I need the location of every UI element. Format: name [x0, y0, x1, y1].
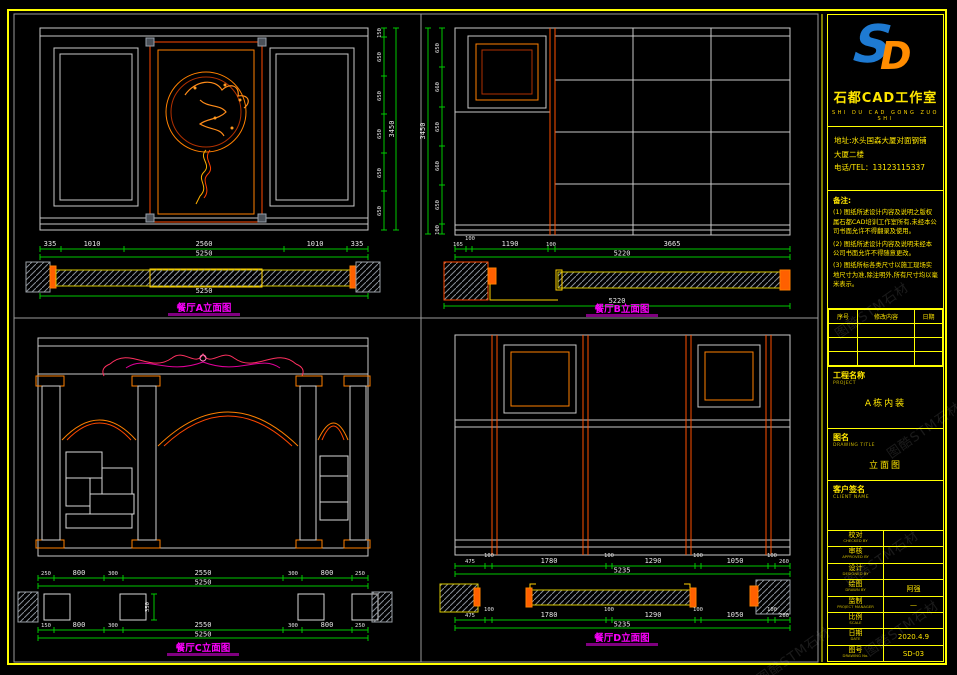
- dim-total: 5235: [614, 567, 631, 575]
- drawing-canvas: 335 1010 2560 1010 335 5250 5250 150 650…: [0, 0, 957, 675]
- note-1: (1) 图纸所述设计内容及说明之版权属石都CAD培训工作室所有,未经本公司书面允…: [833, 208, 938, 236]
- dim-text: 660: [435, 82, 441, 92]
- dim-total: 5250: [196, 250, 213, 258]
- dim-text: 150: [41, 623, 51, 629]
- rev-cell: [915, 324, 943, 338]
- dim-text: 800: [73, 569, 86, 577]
- dim-plan-total: 5250: [196, 287, 213, 295]
- rev-cell: [829, 338, 858, 352]
- notes-title: 备注:: [833, 195, 938, 206]
- row-approved-by: 审核APPROVED BY: [828, 547, 943, 563]
- dim-text: 3665: [664, 240, 681, 248]
- client-label: 客户签名: [833, 484, 938, 495]
- dim-text: 150: [377, 28, 383, 38]
- row-value: 2020.4.9: [884, 629, 943, 644]
- dim-text: 2560: [196, 240, 213, 248]
- dim-text: 475: [465, 613, 475, 619]
- row-value: [884, 547, 943, 562]
- drawing-title-label-en: DRAWING TITLE: [833, 443, 938, 448]
- drawing-label-a: 餐厅A立面图: [176, 302, 232, 314]
- scroll-ornament: [103, 354, 303, 376]
- rev-cell: [858, 324, 915, 338]
- row-value: [884, 613, 943, 628]
- elevation-d: [455, 335, 790, 555]
- drawing-label-c: 餐厅C立面图: [175, 642, 230, 654]
- dim-total: 5250: [195, 579, 212, 587]
- row-value: [884, 531, 943, 546]
- dim-text: 260: [779, 613, 789, 619]
- dim-text: 250: [41, 571, 51, 577]
- dim-text: 650: [435, 122, 441, 132]
- dim-text: 1780: [541, 611, 558, 619]
- elevation-b: [455, 28, 790, 235]
- rev-cell: [858, 338, 915, 352]
- address-line-1: 地址:水头国森大厦对面钢铺: [834, 134, 937, 148]
- dim-text: 1290: [645, 557, 662, 565]
- rev-cell: [858, 352, 915, 366]
- address-line-2: 大厦二楼: [834, 148, 937, 162]
- row-checked-by: 校对CHECKED BY: [828, 531, 943, 547]
- label-underline: [167, 653, 239, 656]
- dim-text: 300: [288, 571, 298, 577]
- dim-text: 2550: [195, 569, 212, 577]
- row-label-en: CHECKED BY: [828, 539, 883, 544]
- dim-text: 300: [108, 623, 118, 629]
- row-label-en: DRAWING No.: [828, 654, 883, 659]
- medallion-ornament: [166, 72, 248, 204]
- dim-text: 660: [435, 161, 441, 171]
- row-date: 日期DATE 2020.4.9: [828, 629, 943, 645]
- elevation-a: [40, 28, 368, 230]
- dim-text: 335: [44, 240, 57, 248]
- phone-line: 电话/TEL：13123115337: [834, 161, 937, 175]
- rev-col-no: 序号: [829, 310, 858, 324]
- dim-text: 100: [604, 607, 614, 613]
- row-drawing-no: 图号DRAWING No. SD-03: [828, 646, 943, 662]
- dim-text: 650: [377, 129, 383, 139]
- rev-col-date: 日期: [915, 310, 943, 324]
- rev-cell: [829, 352, 858, 366]
- dim-text: 100: [484, 553, 494, 559]
- row-value: SD-03: [884, 646, 943, 662]
- drawing-title-section: 图名 DRAWING TITLE 立面图: [828, 429, 943, 481]
- dim-text: 165: [453, 242, 463, 248]
- plan-strip-b: [444, 262, 790, 300]
- row-value: 阿强: [884, 580, 943, 595]
- dim-text: 800: [321, 621, 334, 629]
- row-label-en: SCALE: [828, 621, 883, 626]
- rev-cell: [915, 352, 943, 366]
- drawing-title-label: 图名: [833, 432, 938, 443]
- row-designed-by: 设计DESIGNED BY: [828, 564, 943, 580]
- project-value: A栋内装: [833, 396, 938, 409]
- dim-text: 650: [377, 91, 383, 101]
- dim-text: 335: [351, 240, 364, 248]
- studio-logo-icon: S D: [828, 19, 943, 81]
- row-label-en: PROJECT MANAGER: [828, 605, 883, 610]
- drawing-label-d: 餐厅D立面图: [593, 632, 649, 644]
- row-label-en: DESIGNED BY: [828, 572, 883, 577]
- dim-total: 3450: [419, 123, 427, 140]
- rev-cell: [915, 338, 943, 352]
- dim-total: 5220: [614, 250, 631, 258]
- pilasters: [42, 386, 366, 540]
- client-label-en: CLIENT NAME: [833, 495, 938, 500]
- dim-text: 300: [288, 623, 298, 629]
- dim-text: 250: [355, 571, 365, 577]
- client-section: 客户签名 CLIENT NAME: [828, 481, 943, 531]
- dim-text: 650: [377, 206, 383, 216]
- dim-text: 1010: [307, 240, 324, 248]
- dim-text: 650: [377, 52, 383, 62]
- dim-text: 100: [767, 607, 777, 613]
- label-underline: [586, 643, 658, 646]
- dim-text: 800: [73, 621, 86, 629]
- dim-text: 475: [465, 559, 475, 565]
- studio-name: 石都CAD工作室: [828, 87, 943, 106]
- dim-total: 5235: [614, 621, 631, 629]
- rev-col-desc: 修改内容: [858, 310, 915, 324]
- row-label-en: DRAWN BY: [828, 588, 883, 593]
- dim-text: 260: [779, 559, 789, 565]
- dim-text: 650: [435, 200, 441, 210]
- row-drawn-by: 绘图DRAWN BY 阿强: [828, 580, 943, 596]
- dim-text: 100: [546, 242, 556, 248]
- dim-text: 1050: [727, 611, 744, 619]
- drawing-label-b: 餐厅B立面图: [594, 303, 650, 315]
- project-label-en: PROJECT: [833, 381, 938, 386]
- dim-text: 350: [145, 602, 151, 612]
- dims-a: 335 1010 2560 1010 335 5250 5250 150 650…: [40, 28, 399, 299]
- dim-text: 100: [484, 607, 494, 613]
- dim-text: 100: [767, 553, 777, 559]
- drawing-title-value: 立面图: [833, 458, 938, 471]
- dim-total: 5250: [195, 631, 212, 639]
- dims-c: 250 800 300 2550 300 800 250 5250 150 80…: [38, 569, 368, 641]
- row-label-en: APPROVED BY: [828, 555, 883, 560]
- dim-text: 100: [693, 607, 703, 613]
- label-underline: [168, 313, 240, 316]
- studio-name-pinyin: SHI DU CAD GONG ZUO SHI: [828, 110, 943, 122]
- dim-text: 100: [693, 553, 703, 559]
- dim-text: 100: [604, 553, 614, 559]
- dim-text: 800: [321, 569, 334, 577]
- title-block: S D 石都CAD工作室 SHI DU CAD GONG ZUO SHI 地址:…: [827, 14, 944, 662]
- dim-text: 100: [435, 225, 441, 235]
- dim-text: 1780: [541, 557, 558, 565]
- dim-text: 1290: [645, 611, 662, 619]
- plan-strip-c: [18, 592, 392, 622]
- logo-letter-d: D: [880, 37, 912, 75]
- note-2: (2) 图纸所述设计内容及说明未经本公司书面允许不得随意更改。: [833, 240, 938, 259]
- contact-section: 地址:水头国森大厦对面钢铺 大厦二楼 电话/TEL：13123115337: [828, 127, 943, 191]
- dim-text: 2550: [195, 621, 212, 629]
- dim-text: 100: [465, 236, 475, 242]
- studio-logo-section: S D 石都CAD工作室 SHI DU CAD GONG ZUO SHI: [828, 15, 943, 127]
- dim-total: 3450: [388, 121, 396, 138]
- row-label-en: DATE: [828, 637, 883, 642]
- note-3: (3) 图纸所标各类尺寸以施工现场实地尺寸为准,除注明外,所有尺寸均以毫米表示。: [833, 261, 938, 289]
- rev-cell: [829, 324, 858, 338]
- elevation-c: [36, 338, 370, 556]
- dim-text: 650: [435, 43, 441, 53]
- project-section: 工程名称 PROJECT A栋内装: [828, 367, 943, 429]
- dim-text: 250: [355, 623, 365, 629]
- row-value: —: [884, 597, 943, 612]
- label-underline: [586, 314, 658, 317]
- dim-text: 1190: [502, 240, 519, 248]
- dim-text: 1010: [84, 240, 101, 248]
- row-project-manager: 监制PROJECT MANAGER —: [828, 597, 943, 613]
- row-scale: 比例SCALE: [828, 613, 943, 629]
- dim-text: 300: [108, 571, 118, 577]
- arches: [62, 412, 348, 446]
- dim-text: 1050: [727, 557, 744, 565]
- notes-section: 备注: (1) 图纸所述设计内容及说明之版权属石都CAD培训工作室所有,未经本公…: [828, 191, 943, 309]
- shelving: [66, 452, 348, 528]
- revision-table: 序号 修改内容 日期: [828, 309, 943, 367]
- dim-text: 650: [377, 168, 383, 178]
- row-value: [884, 564, 943, 579]
- project-label: 工程名称: [833, 370, 938, 381]
- cad-sheet: 335 1010 2560 1010 335 5250 5250 150 650…: [0, 0, 957, 675]
